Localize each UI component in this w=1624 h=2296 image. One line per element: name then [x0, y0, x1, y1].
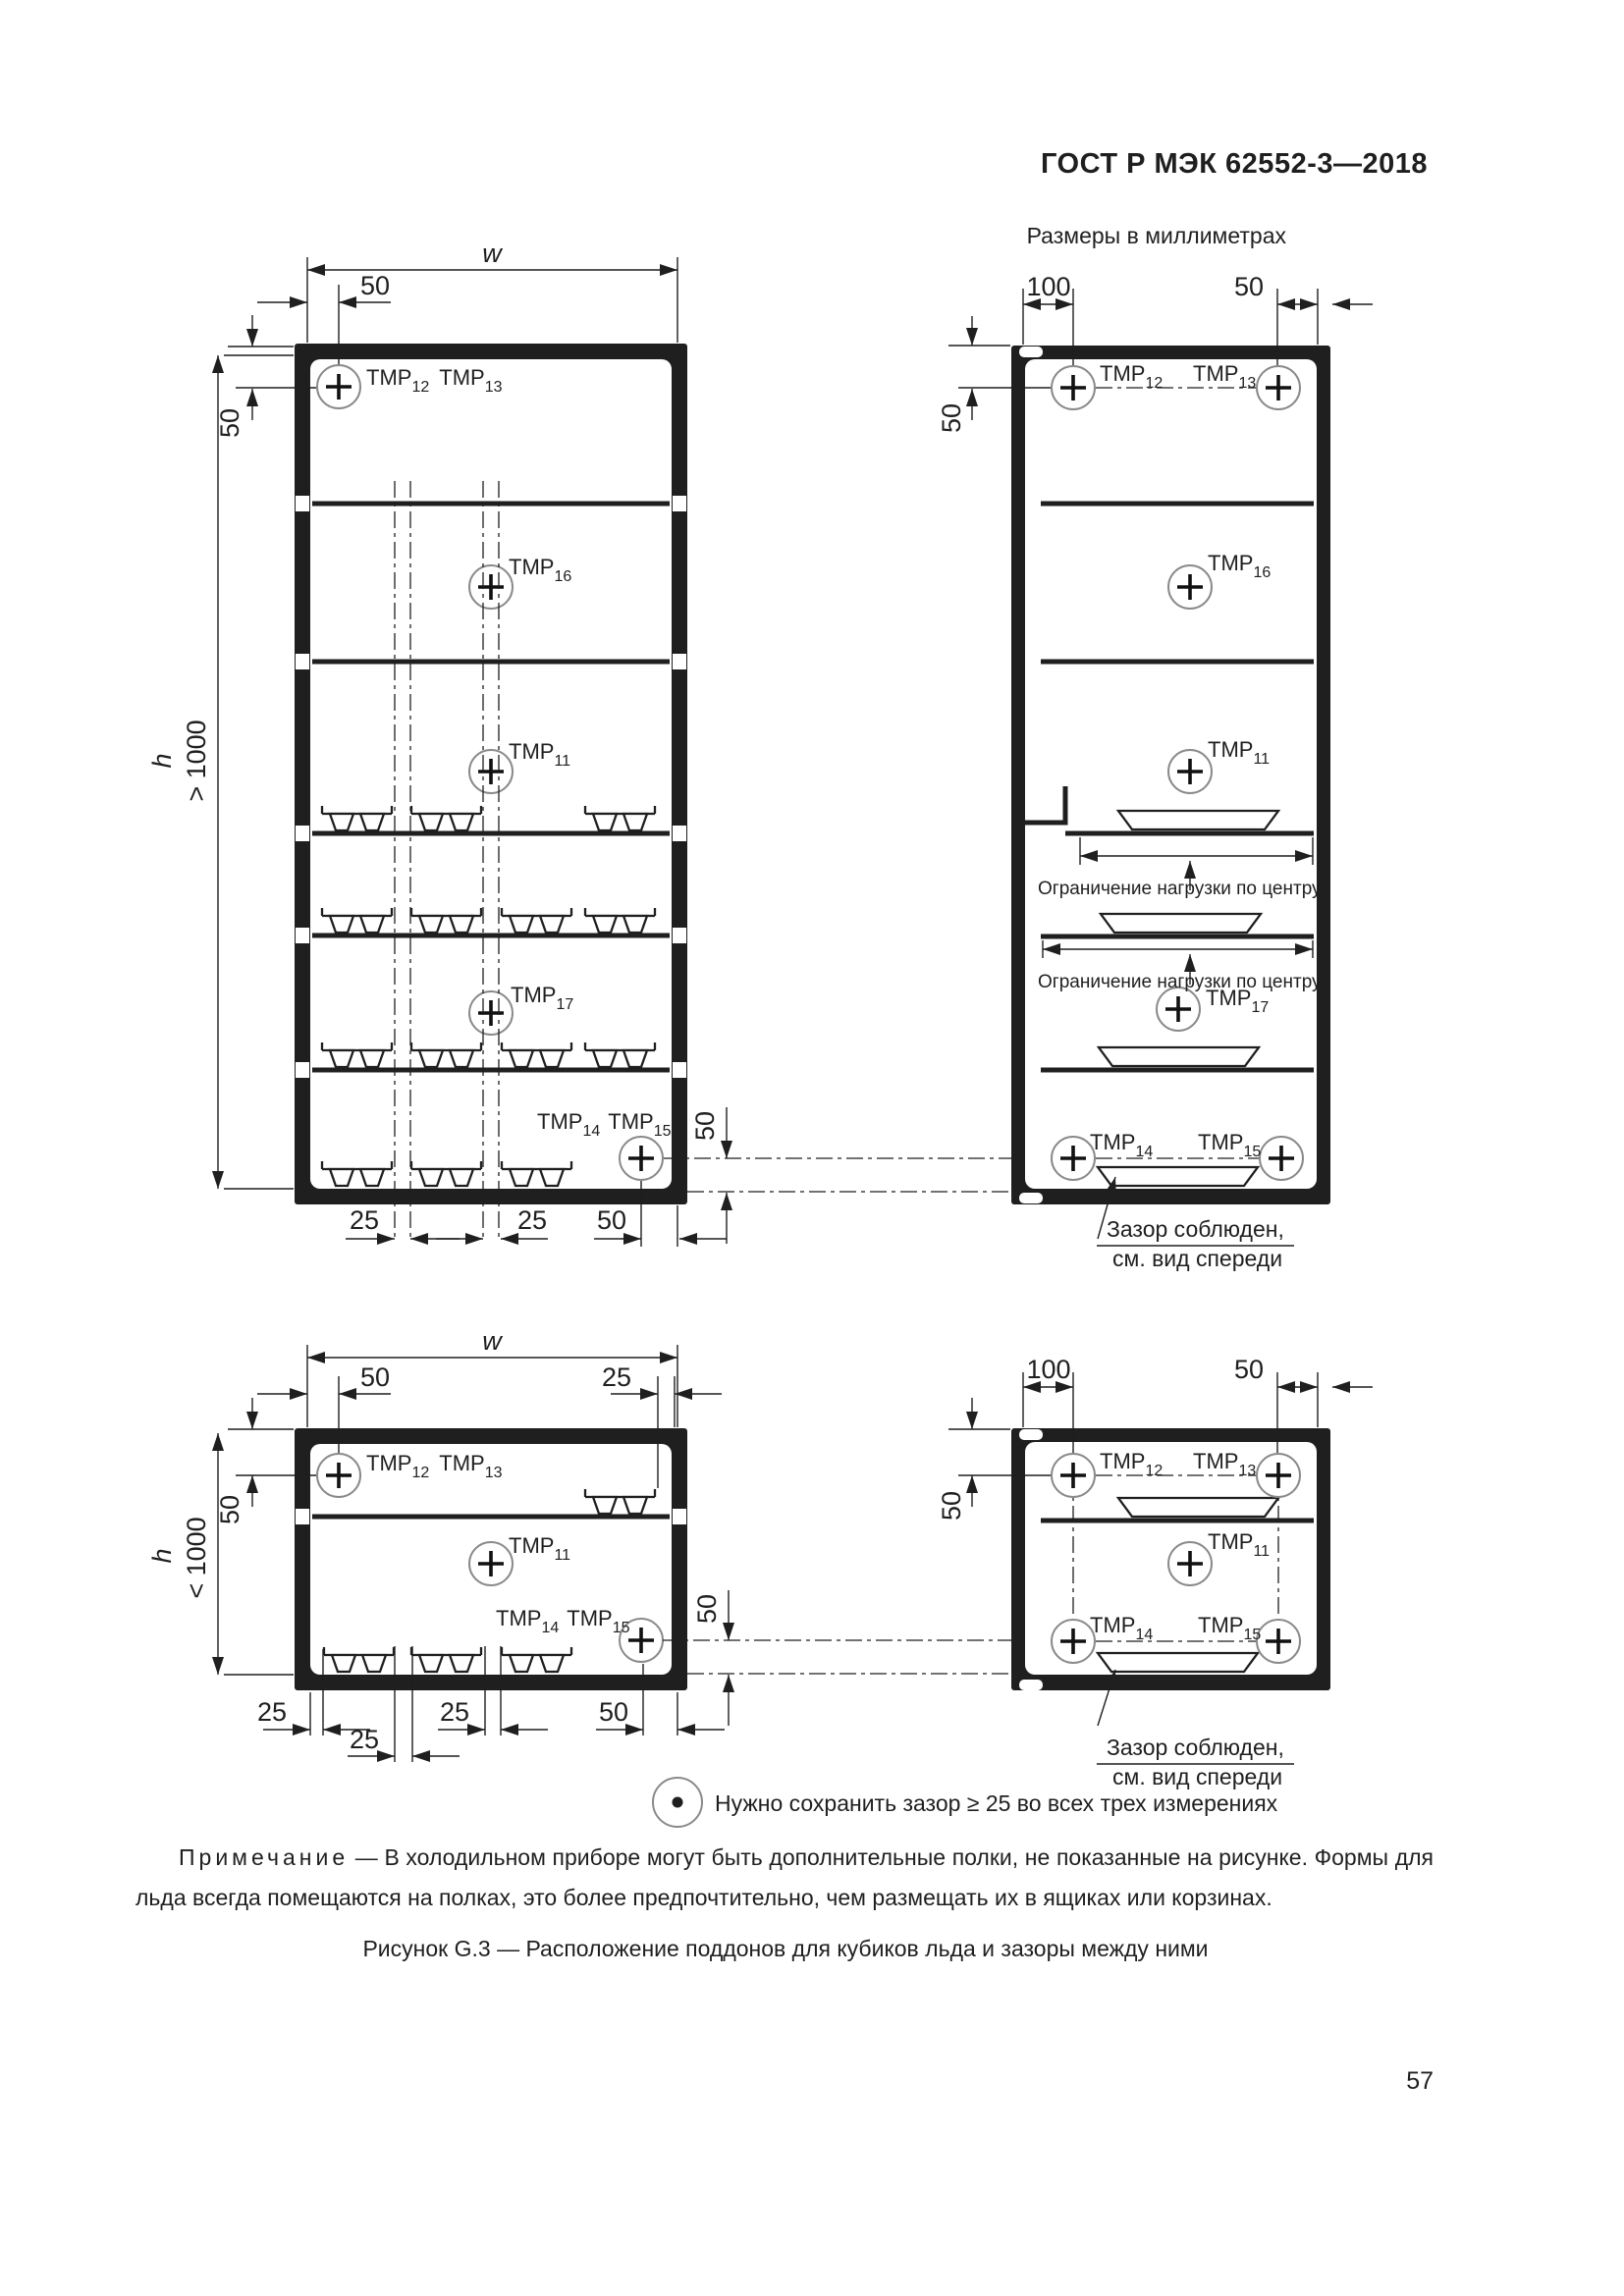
- note-label: Примечание: [179, 1844, 349, 1870]
- side-view-short-cabinet: 100 50 50 Зазор соблюден, см. вид сперед…: [937, 1355, 1373, 1789]
- dim-50: 50: [597, 1205, 626, 1235]
- load-limit-note: Ограничение нагрузки по центру: [1038, 972, 1322, 992]
- dim-25: 25: [257, 1697, 287, 1727]
- dim-50-vert: 50: [937, 1491, 966, 1521]
- dim-50-vert: 50: [215, 1495, 244, 1524]
- note-paragraph: Примечание — В холодильном приборе могут…: [135, 1838, 1434, 1918]
- dim-25: 25: [350, 1725, 379, 1754]
- dim-w: w: [482, 239, 503, 268]
- dim-50-gap: 50: [690, 1111, 720, 1141]
- dim-50-vert: 50: [937, 403, 966, 433]
- dim-50: 50: [1234, 1355, 1264, 1384]
- load-limit-note: Ограничение нагрузки по центру: [1038, 879, 1322, 899]
- dim-lt1000: < 1000: [182, 1517, 211, 1598]
- dim-25: 25: [350, 1205, 379, 1235]
- front-view-tall-cabinet: w 50 50 h > 1000: [147, 239, 1051, 1247]
- dim-25: 25: [602, 1362, 631, 1392]
- dim-gt1000: > 1000: [182, 720, 211, 801]
- side-view-tall-cabinet: 100 50 50 Ограничение нагрузки по центру…: [937, 272, 1373, 1271]
- dim-50: 50: [1234, 272, 1264, 301]
- dim-50: 50: [360, 271, 390, 300]
- dim-50: 50: [360, 1362, 390, 1392]
- gap-note-line1: Зазор соблюден,: [1107, 1735, 1284, 1760]
- gap-note-line2: см. вид спереди: [1112, 1246, 1282, 1271]
- gap-note-line2: см. вид спереди: [1112, 1764, 1282, 1789]
- page-number: 57: [1406, 2067, 1434, 2096]
- standard-page: ГОСТ Р МЭК 62552-3—2018 Размеры в миллим…: [0, 0, 1624, 2296]
- legend-text: Нужно сохранить зазор ≥ 25 во всех трех …: [715, 1790, 1278, 1816]
- dim-h: h: [147, 1548, 177, 1563]
- dim-50-gap: 50: [692, 1594, 722, 1624]
- dim-50-vert: 50: [215, 408, 244, 438]
- dim-100: 100: [1026, 272, 1070, 301]
- dim-w: w: [482, 1326, 503, 1356]
- figure-caption: Рисунок G.3 — Расположение поддонов для …: [0, 1936, 1571, 1962]
- dim-50: 50: [599, 1697, 628, 1727]
- gap-note-line1: Зазор соблюден,: [1107, 1216, 1284, 1242]
- dim-25: 25: [440, 1697, 469, 1727]
- dim-h: h: [147, 753, 177, 768]
- dim-25: 25: [517, 1205, 547, 1235]
- front-view-short-cabinet: w 50 25 50 h < 1000: [147, 1326, 1051, 1762]
- dim-100: 100: [1026, 1355, 1070, 1384]
